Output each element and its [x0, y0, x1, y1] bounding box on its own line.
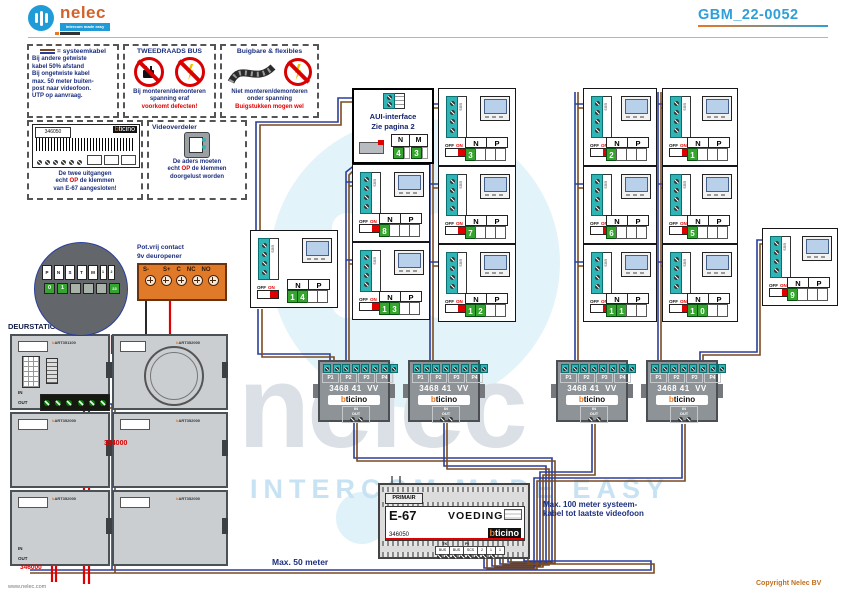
module-article: bART352000	[52, 496, 76, 501]
contact-terminal-labels: S-S+CNCNO	[139, 265, 225, 273]
cable-label-354000: 354000	[104, 440, 127, 447]
legend-text: Niet monteren/demonteren	[225, 89, 314, 96]
videophone-unit: BUS OFFON NP 14	[250, 230, 338, 308]
videophone-unit: BUS OFFON NP 2	[583, 88, 657, 166]
address-table: NP 12	[466, 293, 510, 317]
flexibles-title: Buigbare & flexibles	[225, 48, 314, 55]
document-code-underline	[698, 25, 828, 27]
module-article: bART352000	[176, 496, 200, 501]
door-opener-contact-block: S-S+CNCNO	[137, 263, 227, 301]
door-module: bART352000 IN OUT	[10, 490, 110, 566]
out-label: OUT	[18, 400, 28, 405]
bus-terminal	[383, 93, 407, 109]
footer-copyright: Copyright Nelec BV	[756, 580, 821, 587]
videoverdeler-title: Videoverdeler	[152, 124, 242, 131]
bticino-logo: bticino	[656, 395, 708, 405]
riser-terminal-labels: P1P2P3P4	[322, 373, 393, 383]
module-article: bART352000	[176, 340, 200, 345]
dial-values: 0123	[44, 283, 120, 294]
videophone-unit: BUS OFFON NP 11	[583, 244, 657, 322]
legend-text: De twee uitgangen	[32, 171, 138, 178]
floor-distributor-346841: P1P2P3P4 3468 41 VV bticino IN OUT	[408, 360, 480, 422]
videophone-screen	[621, 252, 651, 277]
tweedraads-title: TWEEDRAADS BUS	[128, 48, 211, 55]
videophone-screen	[702, 252, 732, 277]
videophone-screen	[702, 96, 732, 121]
videophone-screen	[480, 174, 510, 199]
videophone-screen	[621, 174, 651, 199]
module-article: bART351100	[52, 340, 76, 345]
videophone-unit: BUS OFFON NP 10	[662, 244, 738, 322]
videophone-screen	[480, 96, 510, 121]
in-out-terminal: IN OUT	[580, 406, 608, 423]
door-station-rear-detail: PNSTM12 0123	[34, 242, 128, 336]
address-table: NP 3	[466, 137, 510, 161]
videophone-screen	[702, 174, 732, 199]
legend-text: UTP op aanvraag.	[32, 93, 114, 100]
address-table: NP 9	[788, 277, 832, 301]
videophone-screen	[394, 172, 424, 197]
bus-terminal: BUS	[446, 252, 467, 294]
videophone-screen	[394, 250, 424, 275]
bticino-logo: bticino	[566, 395, 618, 405]
videophone-unit: BUS OFFON NP 5	[662, 166, 738, 244]
legend-text: onder spanning	[225, 96, 314, 103]
bus-terminal: BUS	[670, 252, 691, 294]
videophone-unit: BUS OFFON NP 8	[352, 164, 430, 242]
videophone-unit: BUS OFFON NP 9	[762, 228, 838, 306]
door-station: bART351100 IN OUT bART352000 bART352000 …	[10, 334, 228, 566]
legend-text: doorgelust worden	[152, 174, 242, 181]
article-number: 346050	[35, 127, 71, 138]
in-label: IN	[18, 546, 23, 551]
no-voltage-icon	[175, 57, 205, 87]
psu-terminal-screws	[437, 554, 495, 559]
dial-letters: PNSTM12	[42, 265, 115, 280]
primary-label: PRIMAIR	[385, 493, 423, 504]
legend-text: echt OP de klemmen	[32, 178, 138, 185]
coil-icon	[46, 358, 58, 384]
riser-terminal-labels: P1P2P3P4	[560, 373, 631, 383]
bus-terminal: BUS	[591, 252, 612, 294]
pot-contact-label: Pot.vrij contact	[137, 244, 184, 251]
terminal-screws	[37, 160, 82, 165]
legend-videoverdeler: Videoverdeler De aders moeten echt OP de…	[147, 120, 247, 200]
contact-screws	[139, 273, 225, 286]
address-table: NP 8	[380, 213, 424, 237]
door-module: bART352000	[112, 412, 228, 488]
psu-rating-box	[504, 509, 522, 520]
address-table: NP 10	[688, 293, 732, 317]
legend-warning-text: Buigstukken mogen wel	[225, 104, 314, 111]
address-table: NP 11	[607, 293, 651, 317]
address-table: NP 7	[466, 215, 510, 239]
on-off-switch: OFFON	[257, 285, 283, 299]
address-table: NP 2	[607, 137, 651, 161]
in-out-terminal: IN OUT	[342, 406, 370, 423]
green-terminal-strip	[40, 394, 110, 411]
legend-systeemkabel: = systeemkabel Bij andere getwiste kabel…	[27, 44, 119, 118]
logo-wordmark: nelec	[60, 3, 106, 23]
riser-terminal-labels: P1P2P3P4	[650, 373, 721, 383]
bticino-logo: bticino	[328, 395, 380, 405]
aui-interface-box: AUI-interface Zie pagina 2 NM 43	[352, 88, 434, 164]
videophone-unit: BUS OFFON NP 13	[352, 242, 430, 320]
legend-text: Bij andere getwiste	[32, 56, 114, 63]
aui-label: AUI-interface	[354, 112, 432, 121]
videophone-screen	[802, 236, 832, 261]
document-code: GBM_22-0052	[698, 7, 799, 23]
aui-connector-icon	[359, 142, 384, 154]
legend-text: post naar videofoon.	[32, 86, 114, 93]
module-article: bART352000	[52, 418, 76, 423]
legend-text: Bij monteren/demonteren	[128, 89, 211, 96]
bus-terminal: BUS	[446, 96, 467, 138]
connector-block	[22, 356, 40, 388]
in-out-terminal: IN OUT	[670, 406, 698, 423]
psu-model: E-67	[389, 508, 416, 523]
address-table: NP 1	[688, 137, 732, 161]
address-table: NP 5	[688, 215, 732, 239]
bus-terminal: BUS	[670, 174, 691, 216]
footer-website: www.nelec.com	[8, 584, 46, 590]
videophone-unit: BUS OFFON NP 3	[438, 88, 516, 166]
psu-name: VOEDING	[448, 510, 503, 522]
legend-video-node: 346050 bticino De twee uitgangen echt OP…	[27, 120, 143, 200]
bticino-logo: bticino	[113, 126, 137, 133]
note-max-50m: Max. 50 meter	[272, 557, 328, 567]
floor-distributor-346841: P1P2P3P4 3468 41 VV bticino IN OUT	[646, 360, 718, 422]
door-module-speaker: bART352000	[112, 334, 228, 410]
bus-terminal: BUS	[360, 172, 381, 214]
note-max-100m: Max. 100 meter systeem- kabel tot laatst…	[543, 500, 644, 518]
flexible-conduit-icon	[227, 57, 279, 87]
header-rule	[28, 37, 828, 38]
distributor-model: 3468 41 VV	[558, 384, 626, 393]
in-out-terminal: IN OUT	[432, 406, 460, 423]
distributor-model: 3468 41 VV	[410, 384, 478, 393]
door-module: bART352000	[112, 490, 228, 566]
legend-text: echt OP de klemmen	[152, 166, 242, 173]
in-label: IN	[18, 390, 23, 395]
bticino-logo: bticino	[418, 395, 470, 405]
barcode	[36, 138, 134, 151]
address-table: NP 14	[288, 279, 332, 303]
distributor-model: 3468 41 VV	[648, 384, 716, 393]
riser-terminal-screws	[561, 364, 636, 373]
riser-terminal-labels: P1P2P3P4	[412, 373, 483, 383]
out-label: OUT	[18, 556, 28, 561]
bus-terminal: BUS	[670, 96, 691, 138]
videophone-unit: BUS OFFON NP 1	[662, 88, 738, 166]
no-voltage-icon	[284, 58, 312, 86]
bticino-logo: bticino	[488, 528, 522, 538]
door-module: bART352000	[10, 412, 110, 488]
bus-terminal: BUS	[591, 96, 612, 138]
aui-address-table: NM 43	[392, 134, 428, 159]
no-plug-icon	[134, 57, 164, 87]
legend-tweedraads-bus: TWEEDRAADS BUS Bij monteren/demonteren s…	[123, 44, 216, 118]
legend-flexibles: Buigbare & flexibles Niet monteren/demon…	[220, 44, 319, 118]
psu-e67: PRIMAIR E-67 VOEDING 346050 bticino TK P…	[378, 483, 530, 559]
videophone-unit: BUS OFFON NP 6	[583, 166, 657, 244]
floor-distributor-346841: P1P2P3P4 3468 41 VV bticino IN OUT	[556, 360, 628, 422]
bus-terminal: BUS	[770, 236, 791, 278]
legend-warning-text: voorkomt defecten!	[128, 104, 211, 111]
videophone-unit: BUS OFFON NP 7	[438, 166, 516, 244]
speaker-grille	[144, 346, 204, 406]
legend-text: kabel 50% afstand	[32, 64, 114, 71]
system-cable-icon	[40, 49, 55, 51]
legend-text: Bij ongetwiste kabel	[32, 71, 114, 78]
pot-contact-label: 9v deuropener	[137, 253, 182, 260]
videophone-screen	[480, 252, 510, 277]
bus-terminal: BUS	[591, 174, 612, 216]
distributor-model: 3468 41 VV	[320, 384, 388, 393]
module-article: bART352000	[176, 418, 200, 423]
legend-text: van E-67 aangesloten!	[32, 186, 138, 193]
cable-label-346000: 346000	[20, 564, 42, 571]
mains-stubs	[392, 476, 400, 483]
videoverdeler-icon	[184, 132, 210, 158]
riser-terminal-screws	[413, 364, 488, 373]
systeemkabel-title: = systeemkabel	[57, 48, 106, 55]
bticino-mark	[60, 32, 80, 35]
nelec-logo-icon	[28, 5, 54, 31]
address-table: NP 6	[607, 215, 651, 239]
address-table: NP 13	[380, 291, 424, 315]
legend-text: De aders moeten	[152, 159, 242, 166]
videophone-screen	[621, 96, 651, 121]
bus-terminal: BUS	[258, 238, 279, 280]
logo-tagline: intercom made easy	[60, 23, 110, 31]
legend-text: spanning eraf	[128, 96, 211, 103]
riser-terminal-screws	[651, 364, 726, 373]
floor-distributor-346841: P1P2P3P4 3468 41 VV bticino IN OUT	[318, 360, 390, 422]
terminal-cells	[87, 155, 136, 165]
door-module-audio: bART351100 IN OUT	[10, 334, 110, 410]
bus-terminal: BUS	[446, 174, 467, 216]
wiring-diagram-page: nelec INTERCOM MADE EASY	[0, 0, 841, 595]
legend-text: max. 50 meter buiten-	[32, 79, 114, 86]
psu-nameplate: E-67 VOEDING 346050 bticino	[385, 506, 525, 541]
video-node-device: 346050 bticino	[32, 124, 140, 168]
bus-terminal: BUS	[360, 250, 381, 292]
riser-terminal-screws	[323, 364, 398, 373]
videophone-unit: BUS OFFON NP 12	[438, 244, 516, 322]
aui-page-ref: Zie pagina 2	[354, 122, 432, 131]
videophone-screen	[302, 238, 332, 263]
